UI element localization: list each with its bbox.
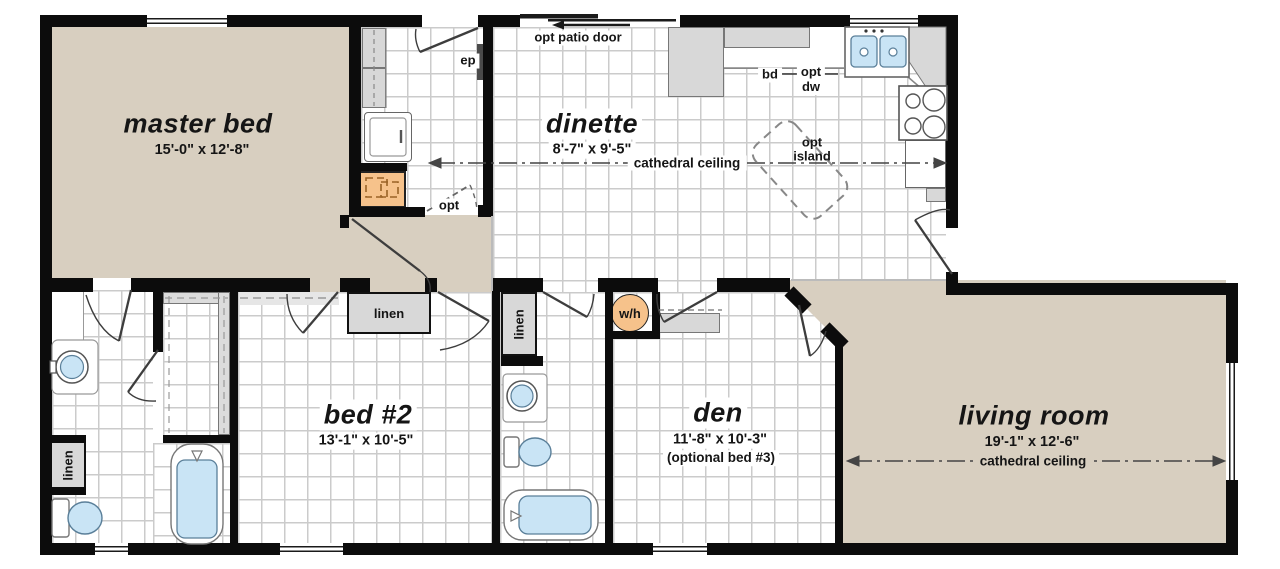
bath2-sink	[503, 374, 547, 422]
room-dims-living-room: 19'-1" x 12'-6"	[985, 434, 1080, 450]
floor-plan: linen linen linen w/h	[0, 0, 1280, 569]
room-dims-bed2: 13'-1" x 10'-5"	[315, 433, 418, 450]
room-dims-master-bed: 15'-0" x 12'-8"	[155, 142, 250, 158]
opt-patio-door-label: opt patio door	[530, 31, 625, 46]
room-label-den: den	[689, 397, 747, 428]
bath2-toilet	[504, 437, 551, 467]
room-dims-dinette: 8'-7" x 9'-5"	[549, 142, 636, 159]
opt-appliance-symbol	[366, 178, 398, 197]
wall-angled	[825, 327, 844, 346]
opt-island	[748, 116, 852, 223]
room-label-living-room: living room	[958, 401, 1109, 432]
ep-label: ep	[456, 54, 479, 69]
cathedral-ceiling-label-living: cathedral ceiling	[974, 454, 1093, 469]
master-bath-sink	[50, 340, 98, 394]
kitchen-corner-counter	[904, 27, 946, 90]
master-bath-toilet	[52, 499, 102, 537]
room-label-bed2: bed #2	[320, 399, 417, 430]
opt-island-line1: opt	[793, 136, 831, 150]
washer-dryer-detail	[374, 28, 386, 108]
room-label-master-bed: master bed	[123, 109, 272, 140]
wall-angled	[789, 291, 807, 309]
room-label-dinette: dinette	[542, 108, 642, 139]
kitchen-sink	[845, 27, 909, 77]
room-dims-den: 11'-8" x 10'-3"	[669, 432, 771, 449]
opt-dw-line2: dw	[801, 80, 821, 95]
stove	[899, 86, 947, 140]
cathedral-ceiling-label-dinette: cathedral ceiling	[628, 156, 747, 171]
bd-label: bd	[758, 68, 782, 83]
opt-island-label: opt island	[793, 136, 831, 165]
room-note-den: (optional bed #3)	[663, 450, 779, 466]
patio-door-icon	[520, 14, 676, 30]
opt-island-line2: island	[793, 150, 831, 164]
master-bathtub	[171, 444, 223, 544]
bath2-bathtub	[504, 490, 598, 540]
freezer-detail	[370, 118, 406, 156]
opt-door-label: opt	[435, 199, 463, 214]
closet-shelf-dash	[165, 296, 228, 433]
opt-dw-line1: opt	[801, 65, 821, 80]
floorplan-overlay	[0, 0, 1280, 569]
opt-dw-label: opt dw	[797, 65, 825, 95]
